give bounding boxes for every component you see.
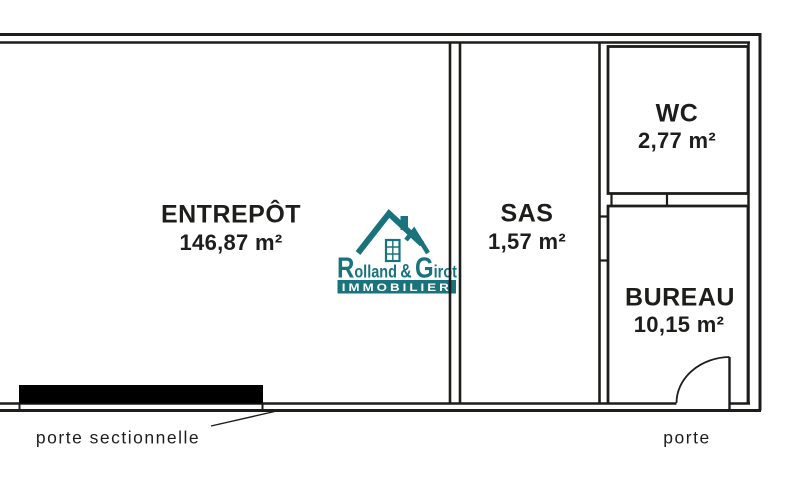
door-label: porte: [663, 428, 710, 449]
room-label-wc: WC: [656, 100, 699, 129]
room-area-sas: 1,57 m²: [488, 229, 566, 255]
room-label-entrepot: ENTREPÔT: [161, 201, 301, 230]
sectional-door-symbol: [19, 385, 263, 404]
sectional-door-label: porte sectionnelle: [36, 428, 200, 449]
wc-bureau-opening-ticks: [612, 194, 668, 207]
door-symbols: [19, 357, 730, 426]
interior-walls: [450, 42, 748, 403]
floorplan-canvas: Rolland&Girot IMMOBILIER: [0, 0, 800, 500]
room-area-bureau: 10,15 m²: [634, 312, 724, 338]
room-area-wc: 2,77 m²: [638, 128, 716, 154]
room-label-bureau: BUREAU: [625, 284, 735, 313]
door-swing-arc: [677, 357, 730, 403]
floorplan-drawing: [0, 0, 800, 500]
room-label-sas: SAS: [501, 200, 554, 229]
sectional-door-leader-line: [211, 411, 279, 427]
room-area-entrepot: 146,87 m²: [180, 230, 283, 256]
outer-walls: [0, 33, 761, 411]
